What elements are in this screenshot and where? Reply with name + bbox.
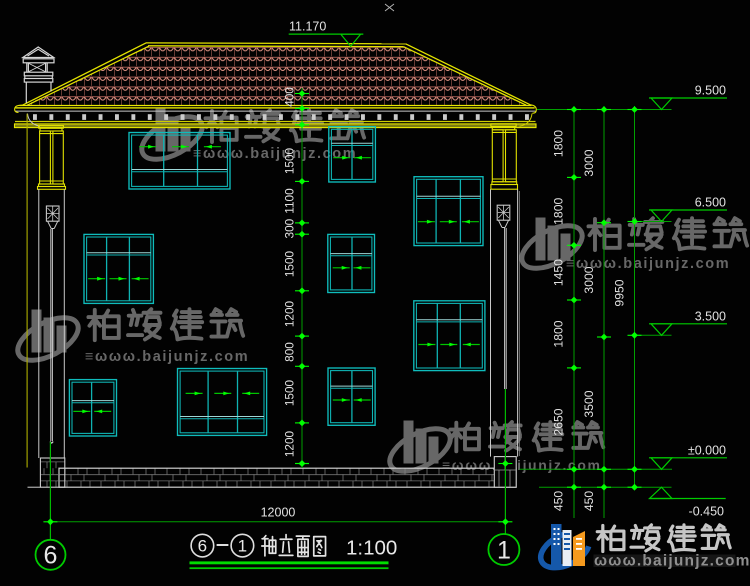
svg-text:6.500: 6.500 <box>695 196 726 210</box>
svg-text:3.500: 3.500 <box>695 309 726 323</box>
svg-text:800: 800 <box>283 342 297 362</box>
svg-text:1800: 1800 <box>552 130 566 157</box>
svg-text:1100: 1100 <box>283 188 297 214</box>
svg-text:1: 1 <box>238 537 247 556</box>
svg-text:-0.450: -0.450 <box>689 505 724 519</box>
svg-text:1800: 1800 <box>552 198 566 225</box>
svg-text:1500: 1500 <box>283 379 297 406</box>
svg-text:ωωω.baijunjz.com: ωωω.baijunjz.com <box>594 553 750 570</box>
svg-text:400: 400 <box>283 87 297 107</box>
svg-text:6: 6 <box>198 537 207 556</box>
svg-text:450: 450 <box>552 491 566 512</box>
svg-text:6: 6 <box>44 542 58 570</box>
svg-text:450: 450 <box>582 491 596 512</box>
svg-text:1200: 1200 <box>283 300 297 327</box>
svg-text:12000: 12000 <box>261 506 296 520</box>
svg-text:3500: 3500 <box>582 390 596 417</box>
svg-text:1450: 1450 <box>552 259 566 286</box>
svg-text:3000: 3000 <box>582 149 596 176</box>
svg-text:±0.000: ±0.000 <box>688 443 726 457</box>
svg-text:1500: 1500 <box>283 147 297 174</box>
svg-text:≡ωωω.baijunjz.com: ≡ωωω.baijunjz.com <box>85 349 249 365</box>
svg-text:1: 1 <box>497 537 511 565</box>
svg-text:2650: 2650 <box>552 408 566 435</box>
svg-text:300: 300 <box>283 218 297 238</box>
svg-text:1500: 1500 <box>283 250 297 277</box>
svg-text:3000: 3000 <box>582 266 596 293</box>
svg-text:9.500: 9.500 <box>695 84 726 98</box>
svg-text:9950: 9950 <box>613 279 627 306</box>
svg-text:≡ωωω.baijunjz.com: ≡ωωω.baijunjz.com <box>193 146 357 162</box>
svg-text:1800: 1800 <box>552 320 566 347</box>
svg-text:11.170: 11.170 <box>289 20 326 34</box>
svg-text:1:100: 1:100 <box>346 537 397 560</box>
svg-text:1200: 1200 <box>283 430 297 457</box>
